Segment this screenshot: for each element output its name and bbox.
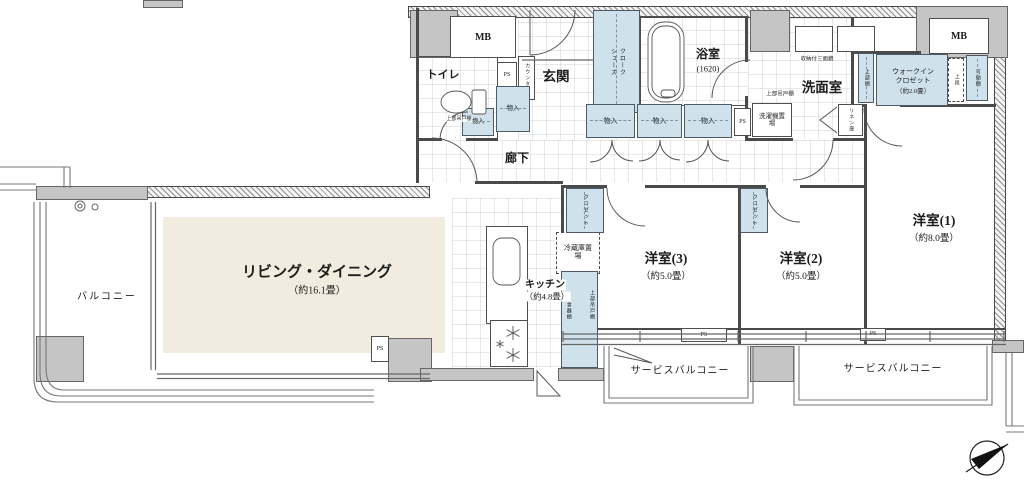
shoe-closet-label-2: クローク bbox=[618, 48, 625, 76]
pipe-space-washroom: PS bbox=[734, 108, 751, 136]
bedroom2-name: 洋室(2) bbox=[780, 251, 823, 266]
closet-bed3: クロゼット bbox=[566, 188, 604, 233]
bedroom2-size-label: （約5.0畳） bbox=[776, 271, 826, 283]
washer-box: 洗濯機置場 bbox=[752, 103, 792, 137]
bedroom1-door-arc bbox=[864, 108, 902, 146]
wall-hall-bed2-c bbox=[800, 185, 867, 188]
pipe-space-toilet: PS bbox=[497, 62, 517, 88]
kitchen-balcony-door bbox=[537, 371, 560, 396]
pipe-space-toilet-label: PS bbox=[504, 72, 511, 79]
wic-size-label: （約2.0畳） bbox=[896, 88, 930, 96]
storage-hall-2: 物入 bbox=[637, 104, 682, 138]
wic-label-2: クロゼット bbox=[896, 76, 931, 85]
movable-shelf-label: 可動棚 bbox=[974, 69, 980, 87]
washroom-label: 洗面室 bbox=[802, 79, 843, 97]
meter-box-right-label: MB bbox=[951, 31, 967, 42]
living-size: （約16.1畳） bbox=[288, 286, 346, 297]
wic-name-1: ウォークイン bbox=[892, 67, 934, 75]
toilet-upper-cabinet-text: 上部吊戸棚 bbox=[445, 117, 472, 122]
refrigerator-label: 冷蔵庫置場 bbox=[563, 245, 593, 260]
balcony-drain bbox=[75, 201, 98, 211]
balcony-name: バルコニー bbox=[77, 292, 137, 303]
wall-right-exterior bbox=[994, 52, 1006, 348]
right-corner-rail bbox=[1006, 353, 1024, 432]
closet-bed3-label: クロゼット bbox=[582, 194, 588, 227]
refrigerator-box: 冷蔵庫置場 bbox=[556, 232, 600, 274]
pipe-space-sb1-label: PS bbox=[701, 332, 708, 339]
pipe-space-sb2-label: PS bbox=[870, 331, 877, 338]
living-label: リビング・ダイニング bbox=[242, 263, 392, 283]
bedroom1-label: 洋室(1) bbox=[913, 212, 956, 230]
bedroom2-door-arc bbox=[766, 188, 800, 222]
dish-shelf-label: 食器棚 bbox=[565, 302, 571, 320]
bathroom-outline bbox=[640, 16, 748, 106]
pipe-space-living: PS bbox=[371, 336, 389, 362]
bedroom3-size: （約5.0畳） bbox=[641, 272, 691, 282]
bedroom2-size: （約5.0畳） bbox=[776, 272, 826, 282]
wall-living-top-exterior bbox=[146, 186, 430, 198]
upper-stage-box: 上段 bbox=[948, 58, 964, 102]
storage-label: 物入 bbox=[472, 118, 485, 125]
hallway-floor bbox=[418, 140, 867, 182]
wall-wash-hall-b bbox=[833, 138, 866, 141]
mirror-box-b bbox=[837, 26, 875, 52]
balcony-top-wall bbox=[36, 186, 148, 200]
washroom-upper-cabinet-label: 上部吊戸棚 bbox=[765, 91, 795, 98]
washer-label: 洗濯機置場 bbox=[758, 113, 786, 127]
compass-needle bbox=[971, 444, 1008, 469]
window-ticks bbox=[563, 331, 1004, 342]
pipe-space-sb2: PS bbox=[860, 328, 886, 341]
kitchen-size: （約4.8畳） bbox=[524, 291, 571, 301]
pipe-space-living-label: PS bbox=[377, 346, 384, 353]
storage-label: 物入 bbox=[507, 105, 520, 112]
storage-hall-1: 物入 bbox=[586, 104, 635, 138]
drain-small bbox=[92, 204, 98, 210]
storage-label: 物入 bbox=[604, 117, 618, 125]
toilet-name: トイレ bbox=[427, 69, 460, 81]
wic-size: （約2.0畳） bbox=[896, 88, 930, 95]
wic-name-2: クロゼット bbox=[896, 76, 931, 84]
compass bbox=[966, 441, 1008, 475]
kitchen-name: キッチン bbox=[524, 280, 566, 291]
meter-box-left: MB bbox=[450, 16, 516, 58]
washroom-upper-cabinet-text: 上部吊戸棚 bbox=[765, 91, 795, 97]
storage-toilet-tall: 物入 bbox=[496, 86, 530, 132]
roof-stub bbox=[143, 0, 183, 8]
wall-kitchen-bottom-b bbox=[558, 368, 604, 381]
upper-stage-label: 上段 bbox=[953, 74, 959, 86]
service-balcony-2-label: サービスバルコニー bbox=[844, 363, 943, 376]
storage-hall-3: 物入 bbox=[684, 104, 732, 138]
storage-label: 物入 bbox=[701, 117, 715, 125]
bedroom3-size-label: （約5.0畳） bbox=[641, 271, 691, 283]
mirror-text: 収納付三面鏡 bbox=[799, 56, 834, 62]
pillar-bath-top bbox=[750, 10, 790, 52]
service-balcony-1-label: サービスバルコニー bbox=[631, 365, 730, 378]
kitchen-counter bbox=[486, 226, 528, 324]
pillar-bottom-right bbox=[992, 340, 1024, 353]
meter-box-left-label: MB bbox=[475, 32, 491, 43]
wall-hall-kitchen bbox=[475, 181, 563, 184]
living-left-window bbox=[151, 202, 156, 370]
upper-cabinet-kitchen-label: 上部吊戸棚 bbox=[588, 290, 594, 320]
upper-shelf-label: 上部棚 bbox=[863, 69, 869, 87]
linen-label: リネン庫 bbox=[848, 108, 854, 132]
drain-outer bbox=[75, 201, 85, 211]
toilet-upper-cabinet-label: 上部吊戸棚 bbox=[445, 117, 472, 124]
dish-shelf-column: 食器棚 上部吊戸棚 bbox=[561, 271, 598, 368]
shoe-closet: シューズ クローク bbox=[593, 10, 640, 113]
linen-box: リネン庫 bbox=[838, 104, 863, 136]
service-balcony-2-name: サービスバルコニー bbox=[844, 364, 943, 375]
pipe-space-washroom-label: PS bbox=[739, 119, 746, 126]
kitchen-size-label: （約4.8畳） bbox=[524, 291, 571, 302]
wic-label-1: ウォークイン bbox=[892, 67, 934, 76]
sb1-step bbox=[614, 348, 652, 363]
meter-box-right: MB bbox=[929, 18, 989, 54]
compass-circle bbox=[970, 441, 1004, 475]
storage-label: 物入 bbox=[653, 117, 667, 125]
entrance-label: 玄関 bbox=[543, 68, 570, 86]
compass-line bbox=[966, 444, 1008, 472]
bedroom3-name: 洋室(3) bbox=[645, 251, 688, 266]
bathroom-name: 浴室 bbox=[696, 47, 720, 61]
service-balcony-1-name: サービスバルコニー bbox=[631, 366, 730, 377]
bedroom2-label: 洋室(2) bbox=[780, 250, 823, 268]
kitchen-label: キッチン bbox=[524, 279, 566, 292]
wall-bedrooms-window-inner bbox=[561, 328, 1006, 330]
kitchen-stove bbox=[490, 320, 528, 367]
toilet-label: トイレ bbox=[427, 68, 460, 82]
closet-bed2-label: クロゼット bbox=[751, 194, 757, 227]
bedroom1-size: （約8.0畳） bbox=[909, 234, 959, 244]
upper-shelf-box: 上部棚 bbox=[858, 53, 874, 103]
bedroom-windows bbox=[563, 334, 1004, 339]
balcony-label: バルコニー bbox=[77, 291, 137, 304]
pipe-space-sb1: PS bbox=[681, 328, 727, 342]
bedroom3-door-arc bbox=[607, 188, 645, 226]
bedroom1-name: 洋室(1) bbox=[913, 213, 956, 228]
mirror-label: 収納付三面鏡 bbox=[799, 56, 834, 63]
shoe-closet-label-1: シューズ bbox=[609, 48, 616, 76]
bathroom-size: (1620) bbox=[697, 63, 720, 73]
mirror-box-a bbox=[795, 26, 833, 52]
floor-plan: MB MB PS カウンター 洗濯機置場 PS リネン庫 PS 上段 PS PS… bbox=[0, 0, 1024, 481]
pillar-balcony-bottom bbox=[36, 336, 84, 382]
movable-shelf-box: 可動棚 bbox=[966, 55, 988, 101]
bathroom-size-label: (1620) bbox=[697, 63, 720, 74]
wall-kitchen-bottom-a bbox=[420, 368, 534, 381]
living-name: リビング・ダイニング bbox=[242, 264, 392, 280]
bedroom3-label: 洋室(3) bbox=[645, 250, 688, 268]
living-size-label: （約16.1畳） bbox=[288, 285, 346, 298]
closet-bed2: クロゼット bbox=[740, 188, 768, 233]
bathroom-label: 浴室 bbox=[696, 47, 720, 63]
entrance-name: 玄関 bbox=[543, 69, 570, 84]
pillar-service-balcony-mid bbox=[750, 346, 794, 382]
hallway-label: 廊下 bbox=[505, 151, 529, 167]
bedroom1-size-label: （約8.0畳） bbox=[909, 233, 959, 245]
sb2-rail bbox=[794, 346, 992, 405]
wall-wash-hall-a bbox=[748, 138, 793, 141]
drain-inner bbox=[78, 204, 82, 208]
washroom-name: 洗面室 bbox=[802, 80, 843, 95]
hallway-name: 廊下 bbox=[505, 151, 529, 165]
